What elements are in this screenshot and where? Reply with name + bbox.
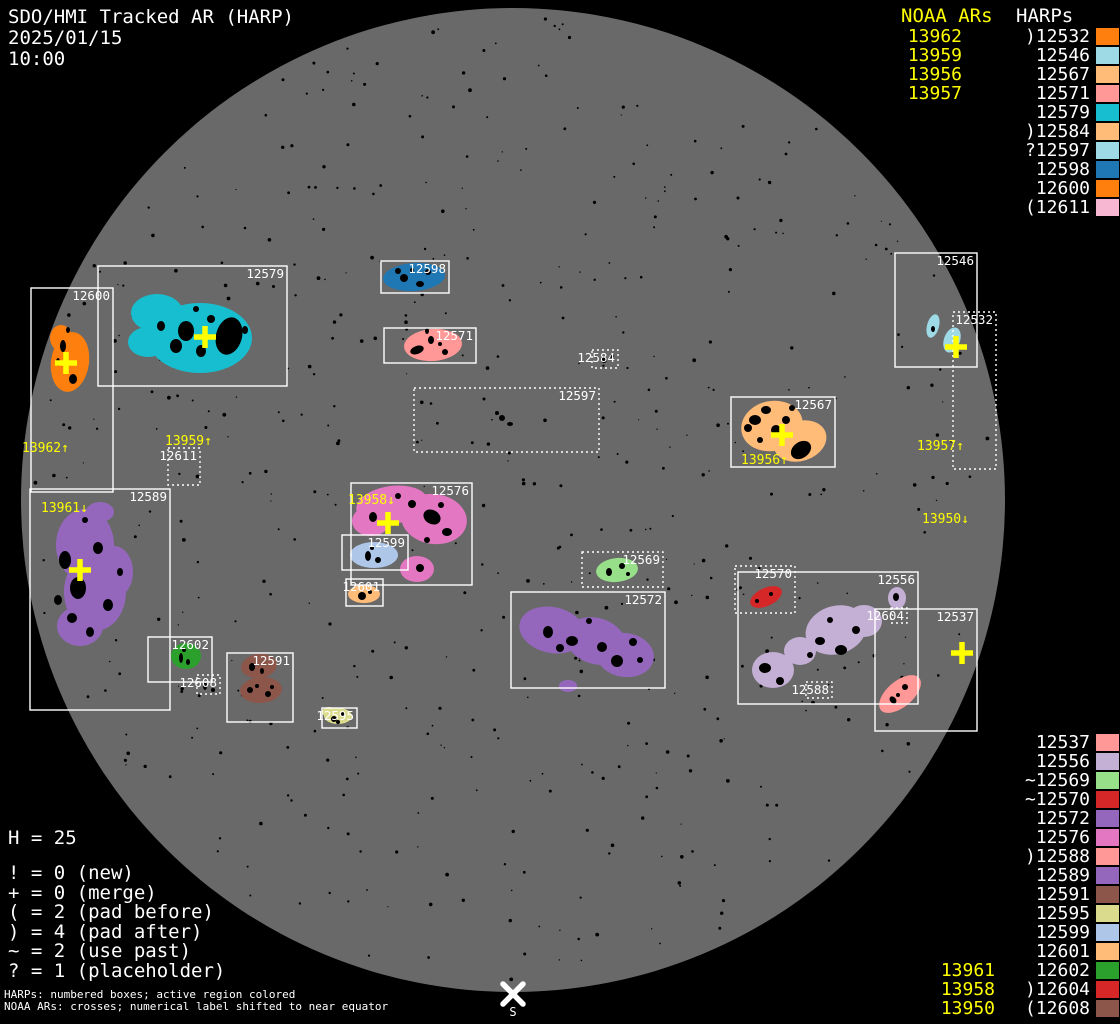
harp-color-swatch: [1096, 943, 1119, 960]
sunspot: [178, 321, 194, 341]
sunspot: [193, 306, 199, 312]
plot-date: 2025/01/15: [8, 28, 294, 49]
legend-symbol-line: ( = 2 (pad before): [8, 903, 225, 923]
harp-list-row: 12576: [900, 828, 1119, 847]
sunspot: [179, 653, 183, 663]
harp-color-swatch: [1096, 772, 1119, 789]
harp-box-label: 12608: [179, 675, 217, 690]
harp-box-label: 12532: [955, 312, 993, 327]
harp-number: )12588: [995, 847, 1090, 866]
harp-box-label: 12571: [435, 328, 473, 343]
sunspot: [60, 340, 66, 352]
sunspot: [755, 599, 759, 603]
harp-list-row: 1395912546: [900, 46, 1119, 65]
harp-box-label: 12584: [577, 350, 615, 365]
harp-color-swatch: [1096, 123, 1119, 140]
harp-number: 12556: [995, 752, 1090, 771]
harp-list-row: 12537: [900, 733, 1119, 752]
footnote-line: NOAA ARs: crosses; numerical label shift…: [4, 1001, 388, 1013]
harp-number: 12579: [962, 103, 1090, 122]
harp-number: 12598: [962, 160, 1090, 179]
sunspot: [507, 422, 513, 426]
sunspot: [265, 691, 271, 697]
harp-list-bottom: 1253712556~12569~125701257212576)1258812…: [900, 733, 1119, 1018]
harp-number: 12537: [995, 733, 1090, 752]
harp-list-row: 12572: [900, 809, 1119, 828]
sunspot: [769, 592, 773, 596]
active-region-blob: [95, 546, 133, 598]
sunspot: [54, 595, 62, 605]
sunspot: [761, 406, 771, 414]
harp-list-row: (12611: [900, 198, 1119, 217]
harp-number: 12589: [995, 866, 1090, 885]
harp-color-swatch: [1096, 981, 1119, 998]
harp-box-label: 12611: [159, 448, 197, 463]
harp-number: (12608: [995, 999, 1090, 1018]
harp-list-row: 13950(12608: [900, 999, 1119, 1018]
sunspot: [827, 617, 833, 623]
noaa-ar-number: 13958: [900, 980, 995, 999]
noaa-ar-number: 13962: [900, 27, 962, 46]
noaa-ar-number: 13961: [900, 961, 995, 980]
harp-color-swatch: [1096, 199, 1119, 216]
harp-color-swatch: [1096, 905, 1119, 922]
sunspot: [597, 642, 607, 652]
title-block: SDO/HMI Tracked AR (HARP) 2025/01/15 10:…: [8, 7, 294, 70]
sunspot: [629, 638, 637, 646]
sunspot: [626, 572, 630, 576]
harp-color-swatch: [1096, 47, 1119, 64]
harp-list-row: )12588: [900, 847, 1119, 866]
active-region-blob: [128, 327, 168, 357]
sunspot: [255, 684, 259, 688]
harp-color-swatch: [1096, 867, 1119, 884]
harp-box-label: 12576: [431, 483, 469, 498]
harps-header: HARPs: [1016, 6, 1073, 26]
harp-color-swatch: [1096, 142, 1119, 159]
harp-color-swatch: [1096, 886, 1119, 903]
sunspot: [425, 328, 429, 334]
sunspot: [365, 551, 371, 561]
noaa-ars-header: NOAA ARs: [901, 6, 993, 26]
harp-list-row: 13958)12604: [900, 980, 1119, 999]
harp-box-label: 12597: [558, 388, 596, 403]
harp-number: )12532: [962, 27, 1090, 46]
harp-list-row: 12601: [900, 942, 1119, 961]
harp-box-label: 12569: [622, 552, 660, 567]
noaa-shifted-label: 13956↑: [741, 453, 788, 468]
harp-box-label: 12595: [316, 708, 354, 723]
sunspot: [566, 636, 578, 646]
sunspot: [170, 339, 182, 353]
harp-box-label: 12601: [342, 579, 380, 594]
sunspot: [103, 599, 113, 611]
noaa-shifted-label: 13961↓: [41, 501, 88, 516]
harp-number: 12595: [995, 904, 1090, 923]
harp-number: (12611: [962, 198, 1090, 217]
harp-list-row: 1395612567: [900, 65, 1119, 84]
sunspot: [586, 618, 592, 624]
sunspot: [896, 693, 900, 697]
harp-color-swatch: [1096, 66, 1119, 83]
sunspot: [375, 557, 381, 563]
harp-box-label: 12546: [936, 253, 974, 268]
sunspot: [117, 568, 123, 576]
noaa-shifted-label: 13958↓: [348, 493, 395, 508]
harp-color-swatch: [1096, 848, 1119, 865]
legend-symbol-line: ~ = 2 (use past): [8, 942, 225, 962]
harp-list-row: ?12597: [900, 141, 1119, 160]
noaa-ar-number: 13957: [900, 84, 962, 103]
harp-number: 12591: [995, 885, 1090, 904]
sunspot: [637, 657, 643, 663]
plot-time: 10:00: [8, 49, 294, 70]
harp-color-swatch: [1096, 28, 1119, 45]
sunspot: [442, 349, 448, 355]
sunspot: [428, 336, 434, 344]
sunspot: [776, 677, 784, 685]
sunspot: [757, 437, 763, 443]
sunspot: [416, 281, 424, 287]
sunspot: [852, 626, 860, 634]
harp-number: 12572: [995, 809, 1090, 828]
sunspot: [242, 326, 248, 334]
sunspot: [744, 424, 752, 432]
harp-number: 12571: [962, 84, 1090, 103]
sunspot: [408, 500, 416, 508]
harp-number: 12576: [995, 828, 1090, 847]
harp-number: ~12569: [995, 771, 1090, 790]
sunspot: [442, 528, 452, 536]
sunspot: [835, 645, 847, 655]
harp-box-label: 12602: [171, 637, 209, 652]
sunspot: [369, 512, 377, 522]
noaa-ar-number: 13956: [900, 65, 962, 84]
harp-list-row: 13962)12532: [900, 27, 1119, 46]
sunspot: [59, 551, 71, 569]
harp-color-swatch: [1096, 962, 1119, 979]
harp-list-row: 12598: [900, 160, 1119, 179]
solar-disk-circle: [21, 8, 1005, 992]
sunspot: [395, 493, 401, 499]
harp-list-row: 12591: [900, 885, 1119, 904]
harp-list-row: )12584: [900, 122, 1119, 141]
active-region-blob: [57, 606, 103, 646]
sunspot: [759, 663, 771, 673]
noaa-shifted-label: 13962↑: [22, 441, 69, 456]
harp-list-row: 12556: [900, 752, 1119, 771]
harp-color-swatch: [1096, 1000, 1119, 1017]
sunspot: [815, 637, 825, 645]
footnotes: HARPs: numbered boxes; active region col…: [4, 989, 388, 1013]
noaa-shifted-label: 13957↑: [917, 439, 964, 454]
sunspot: [207, 315, 215, 323]
harp-number: ?12597: [962, 141, 1090, 160]
active-region-blob: [131, 294, 183, 332]
noaa-ar-number: 13950: [900, 999, 995, 1018]
harp-box-label: 12598: [408, 261, 446, 276]
harp-color-swatch: [1096, 791, 1119, 808]
noaa-shifted-label: 13959↑: [165, 434, 212, 449]
harp-box-label: 12604: [866, 608, 904, 623]
harp-list-row: 12599: [900, 923, 1119, 942]
harp-color-swatch: [1096, 924, 1119, 941]
sunspot: [606, 568, 612, 576]
sunspot: [611, 655, 623, 667]
harp-color-swatch: [1096, 104, 1119, 121]
harp-count: H = 25: [8, 828, 77, 849]
sunspot: [416, 564, 424, 572]
sunspot: [270, 685, 274, 689]
harp-number: )12604: [995, 980, 1090, 999]
harp-number: 12599: [995, 923, 1090, 942]
harp-box-label: 12591: [252, 653, 290, 668]
sunspot: [499, 415, 505, 421]
sunspot: [749, 415, 761, 425]
legend-symbol-line: ! = 0 (new): [8, 864, 225, 884]
harp-box-label: 12572: [624, 592, 662, 607]
harp-list-row: 1395712571: [900, 84, 1119, 103]
sunspot: [424, 537, 430, 543]
harp-box-label: 12567: [794, 397, 832, 412]
active-region-blob: [86, 502, 114, 522]
sunspot: [438, 502, 444, 508]
harp-color-swatch: [1096, 734, 1119, 751]
harp-list-top: 13962)1253213959125461395612567139571257…: [900, 27, 1119, 217]
harp-box-label: 12599: [367, 535, 405, 550]
harp-list-row: 12595: [900, 904, 1119, 923]
sunspot: [67, 613, 77, 623]
plot-title: SDO/HMI Tracked AR (HARP): [8, 7, 294, 28]
harp-color-swatch: [1096, 753, 1119, 770]
symbol-legend: ! = 0 (new)+ = 0 (merge)( = 2 (pad befor…: [8, 864, 225, 981]
harp-box-label: 12579: [246, 266, 284, 281]
harp-color-swatch: [1096, 161, 1119, 178]
sunspot: [931, 326, 935, 332]
noaa-shifted-label: 13950↓: [922, 512, 969, 527]
sunspot: [543, 626, 553, 638]
harp-list-row: ~12570: [900, 790, 1119, 809]
harp-color-swatch: [1096, 810, 1119, 827]
sunspot: [186, 659, 190, 665]
sunspot: [66, 327, 70, 333]
harp-number: 12567: [962, 65, 1090, 84]
harp-number: 12600: [962, 179, 1090, 198]
harp-box-label: 12556: [877, 572, 915, 587]
harp-box-label: 12589: [129, 489, 167, 504]
harp-color-swatch: [1096, 180, 1119, 197]
harp-box-label: 12537: [936, 609, 974, 624]
harp-tracker-screen: 1260012579125981257112584125971261112589…: [0, 0, 1120, 1024]
harp-list-row: 12589: [900, 866, 1119, 885]
harp-box-label: 12588: [791, 682, 829, 697]
harp-number: ~12570: [995, 790, 1090, 809]
harp-number: 12546: [962, 46, 1090, 65]
harp-number: 12602: [995, 961, 1090, 980]
harp-number: 12601: [995, 942, 1090, 961]
noaa-ar-number: 13959: [900, 46, 962, 65]
sunspot: [157, 321, 165, 331]
sunspot: [69, 374, 77, 384]
legend-symbol-line: ? = 1 (placeholder): [8, 962, 225, 982]
sunspot: [86, 627, 94, 637]
active-region-blob: [559, 680, 577, 692]
harp-list-row: 1396112602: [900, 961, 1119, 980]
sunspot: [93, 542, 103, 554]
harp-box-label: 12570: [754, 566, 792, 581]
sunspot: [82, 517, 88, 523]
sunspot: [556, 644, 564, 652]
sunspot: [902, 684, 908, 690]
harp-list-row: 12579: [900, 103, 1119, 122]
sunspot: [260, 668, 264, 674]
sunspot: [495, 411, 499, 415]
south-pole-label: S: [509, 1005, 516, 1019]
harp-list-row: ~12569: [900, 771, 1119, 790]
sunspot: [807, 652, 813, 658]
harp-number: )12584: [962, 122, 1090, 141]
harp-color-swatch: [1096, 85, 1119, 102]
sunspot: [782, 416, 790, 424]
sunspot: [395, 268, 401, 274]
sunspot: [893, 593, 899, 601]
harp-list-row: 12600: [900, 179, 1119, 198]
harp-color-swatch: [1096, 829, 1119, 846]
harp-box-label: 12600: [72, 288, 110, 303]
sunspot: [400, 274, 408, 282]
sunspot: [247, 687, 253, 693]
